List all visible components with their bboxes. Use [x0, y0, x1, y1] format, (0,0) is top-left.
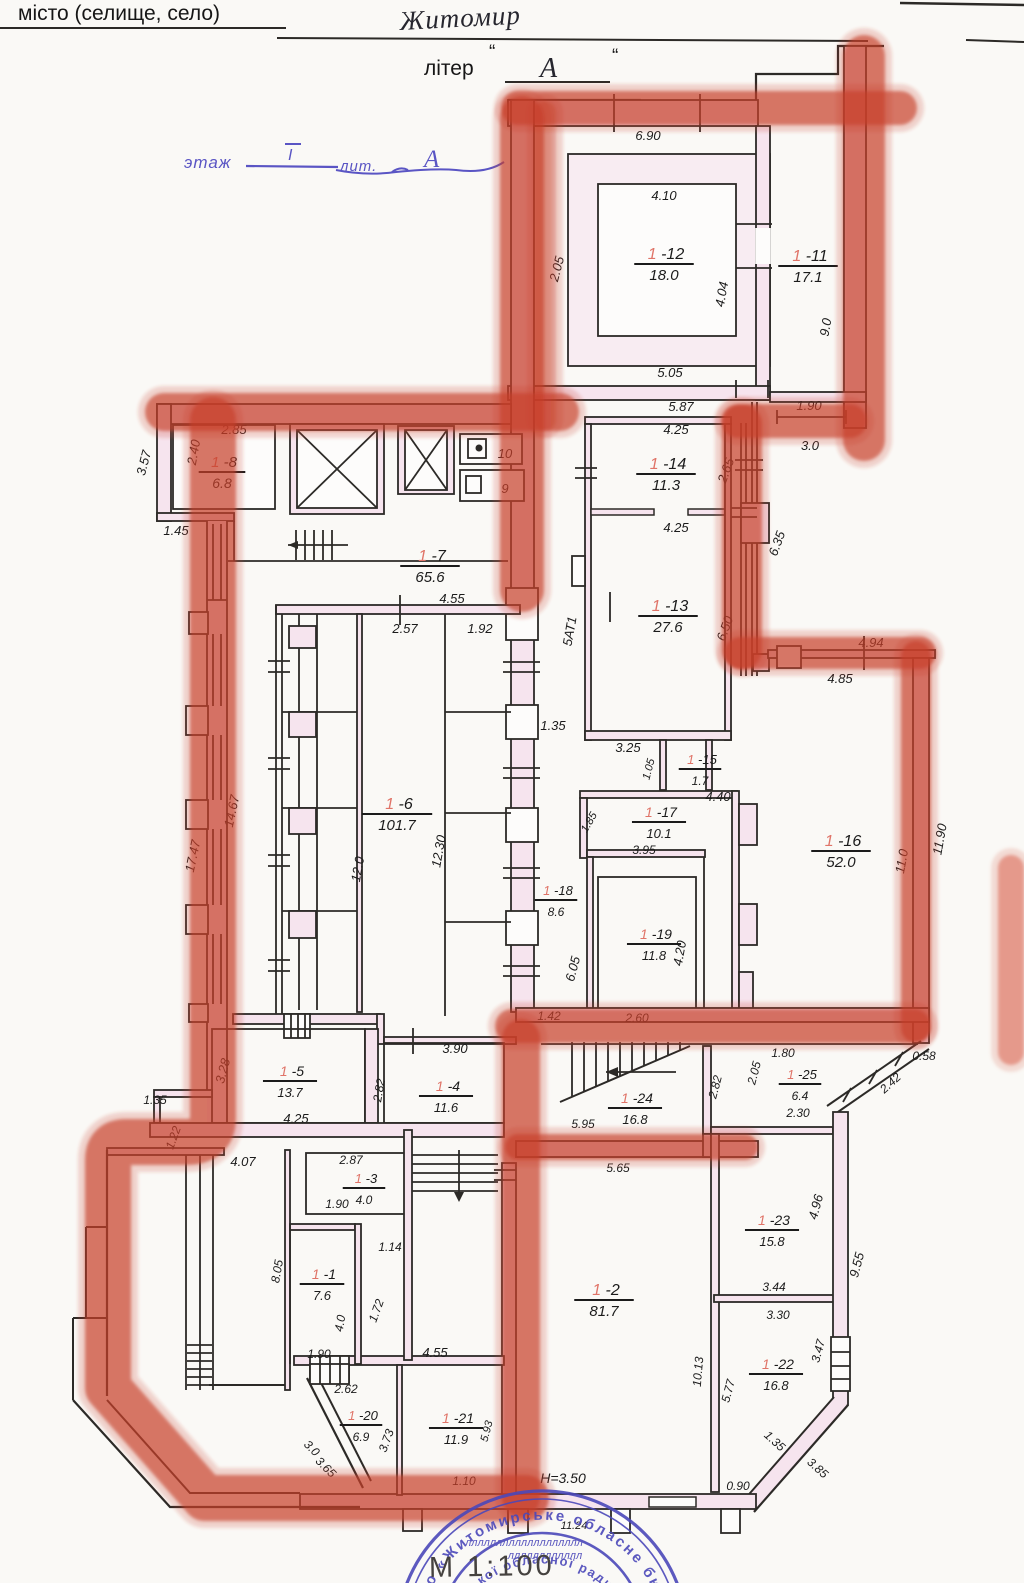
svg-text:1 -5: 1 -5 — [280, 1063, 304, 1079]
svg-text:6.05: 6.05 — [562, 954, 583, 983]
svg-text:81.7: 81.7 — [589, 1303, 619, 1320]
svg-text:5.77: 5.77 — [718, 1377, 738, 1404]
svg-text:4.96: 4.96 — [805, 1192, 826, 1221]
svg-text:16.8: 16.8 — [763, 1378, 789, 1393]
svg-text:1 -23: 1 -23 — [758, 1212, 790, 1228]
svg-text:“: “ — [489, 42, 495, 63]
svg-text:17.1: 17.1 — [793, 269, 822, 286]
svg-text:3.73: 3.73 — [376, 1427, 397, 1454]
svg-text:1.90: 1.90 — [325, 1197, 349, 1211]
svg-text:27.6: 27.6 — [652, 619, 683, 636]
svg-text:І: І — [288, 147, 293, 164]
svg-text:12.0: 12.0 — [348, 855, 367, 883]
svg-text:10.1: 10.1 — [646, 826, 671, 841]
svg-text:65.6: 65.6 — [415, 569, 445, 586]
svg-text:3.90: 3.90 — [442, 1041, 468, 1056]
svg-text:“: “ — [612, 46, 618, 67]
svg-text:15.8: 15.8 — [759, 1234, 785, 1249]
svg-text:6.9: 6.9 — [353, 1430, 370, 1444]
svg-text:ллллллллллллллллллл: ллллллллллллллллллл — [464, 1537, 583, 1549]
svg-text:2.30: 2.30 — [785, 1106, 810, 1120]
svg-text:11.8: 11.8 — [642, 948, 667, 963]
svg-text:0.58: 0.58 — [912, 1049, 936, 1063]
svg-text:2.82: 2.82 — [370, 1077, 388, 1104]
svg-text:8.6: 8.6 — [548, 905, 565, 919]
svg-text:2.42: 2.42 — [876, 1070, 904, 1097]
svg-text:1 -6: 1 -6 — [385, 796, 413, 813]
svg-text:4.07: 4.07 — [230, 1154, 256, 1169]
svg-text:9.55: 9.55 — [846, 1250, 867, 1279]
svg-text:4.25: 4.25 — [663, 422, 689, 437]
svg-text:1 -13: 1 -13 — [652, 598, 689, 615]
svg-text:0.90: 0.90 — [726, 1479, 750, 1493]
svg-text:3.95: 3.95 — [632, 843, 656, 857]
svg-text:4.20: 4.20 — [670, 939, 689, 967]
svg-text:1 -19: 1 -19 — [640, 926, 672, 942]
svg-text:2.87: 2.87 — [338, 1153, 364, 1167]
svg-text:1 -1: 1 -1 — [312, 1266, 336, 1282]
svg-text:1 -17: 1 -17 — [645, 804, 678, 820]
svg-text:этаж: этаж — [184, 153, 232, 172]
svg-text:1 -24: 1 -24 — [621, 1090, 653, 1106]
svg-text:4.55: 4.55 — [422, 1345, 448, 1360]
svg-text:1 -22: 1 -22 — [762, 1356, 794, 1372]
svg-text:4.55: 4.55 — [439, 591, 465, 606]
svg-text:5.87: 5.87 — [668, 399, 694, 414]
svg-text:1 -20: 1 -20 — [348, 1408, 378, 1423]
svg-text:1 -15: 1 -15 — [687, 752, 717, 767]
svg-text:2.57: 2.57 — [391, 621, 418, 636]
svg-text:4.40: 4.40 — [705, 789, 731, 804]
svg-text:1.35: 1.35 — [540, 718, 566, 733]
svg-text:1 -14: 1 -14 — [650, 456, 687, 473]
svg-text:4.0: 4.0 — [332, 1314, 349, 1333]
svg-text:1 -2: 1 -2 — [592, 1282, 620, 1299]
svg-text:1.92: 1.92 — [467, 621, 493, 636]
svg-text:1.35: 1.35 — [143, 1093, 167, 1107]
svg-text:1.72: 1.72 — [366, 1297, 387, 1324]
svg-text:1 -21: 1 -21 — [442, 1410, 474, 1426]
svg-text:1 -16: 1 -16 — [825, 833, 862, 850]
svg-text:8.05: 8.05 — [268, 1258, 286, 1284]
svg-text:6.4: 6.4 — [792, 1089, 809, 1103]
svg-text:11.9: 11.9 — [444, 1432, 468, 1447]
svg-text:3.30: 3.30 — [766, 1308, 790, 1322]
svg-text:3.85: 3.85 — [804, 1455, 831, 1481]
svg-text:101.7: 101.7 — [378, 817, 416, 834]
svg-text:місто (селище, село): місто (селище, село) — [18, 2, 220, 25]
svg-text:1.7: 1.7 — [692, 774, 710, 788]
svg-text:7.6: 7.6 — [313, 1288, 332, 1303]
svg-text:1 -12: 1 -12 — [648, 246, 685, 263]
svg-text:1.90: 1.90 — [307, 1347, 331, 1361]
svg-text:4.0: 4.0 — [356, 1193, 373, 1207]
svg-text:11.6: 11.6 — [434, 1100, 459, 1115]
svg-text:1 -18: 1 -18 — [543, 883, 573, 898]
svg-text:1 -25: 1 -25 — [787, 1067, 817, 1082]
svg-text:3.47: 3.47 — [808, 1337, 828, 1364]
svg-text:52.0: 52.0 — [826, 854, 856, 871]
svg-text:1.05: 1.05 — [641, 756, 658, 781]
svg-text:4.10: 4.10 — [651, 188, 677, 203]
svg-text:1 -7: 1 -7 — [418, 548, 447, 565]
svg-text:5АТ1: 5АТ1 — [560, 615, 580, 647]
svg-text:11.3: 11.3 — [652, 477, 681, 494]
svg-text:3.25: 3.25 — [615, 740, 641, 755]
svg-text:2.05: 2.05 — [744, 1060, 764, 1087]
svg-text:5.05: 5.05 — [657, 365, 683, 380]
svg-text:18.0: 18.0 — [649, 267, 679, 284]
svg-text:16.8: 16.8 — [622, 1112, 648, 1127]
svg-text:5.93: 5.93 — [479, 1418, 496, 1443]
svg-text:10.13: 10.13 — [690, 1356, 707, 1387]
svg-text:1.35: 1.35 — [761, 1428, 788, 1454]
svg-text:1.14: 1.14 — [378, 1240, 402, 1254]
svg-text:1 -11: 1 -11 — [792, 248, 827, 265]
svg-text:1 -4: 1 -4 — [436, 1078, 460, 1094]
svg-text:Житомир: Житомир — [398, 0, 522, 36]
svg-text:А: А — [538, 53, 558, 84]
svg-text:М 1:100: М 1:100 — [429, 1550, 555, 1583]
svg-text:4.25: 4.25 — [663, 520, 689, 535]
svg-text:3.57: 3.57 — [133, 448, 154, 477]
svg-text:літер: літер — [424, 57, 474, 80]
svg-text:3.44: 3.44 — [762, 1280, 786, 1294]
svg-text:9.0: 9.0 — [817, 316, 835, 337]
svg-text:13.7: 13.7 — [277, 1085, 303, 1100]
svg-text:1 -3: 1 -3 — [355, 1171, 378, 1186]
